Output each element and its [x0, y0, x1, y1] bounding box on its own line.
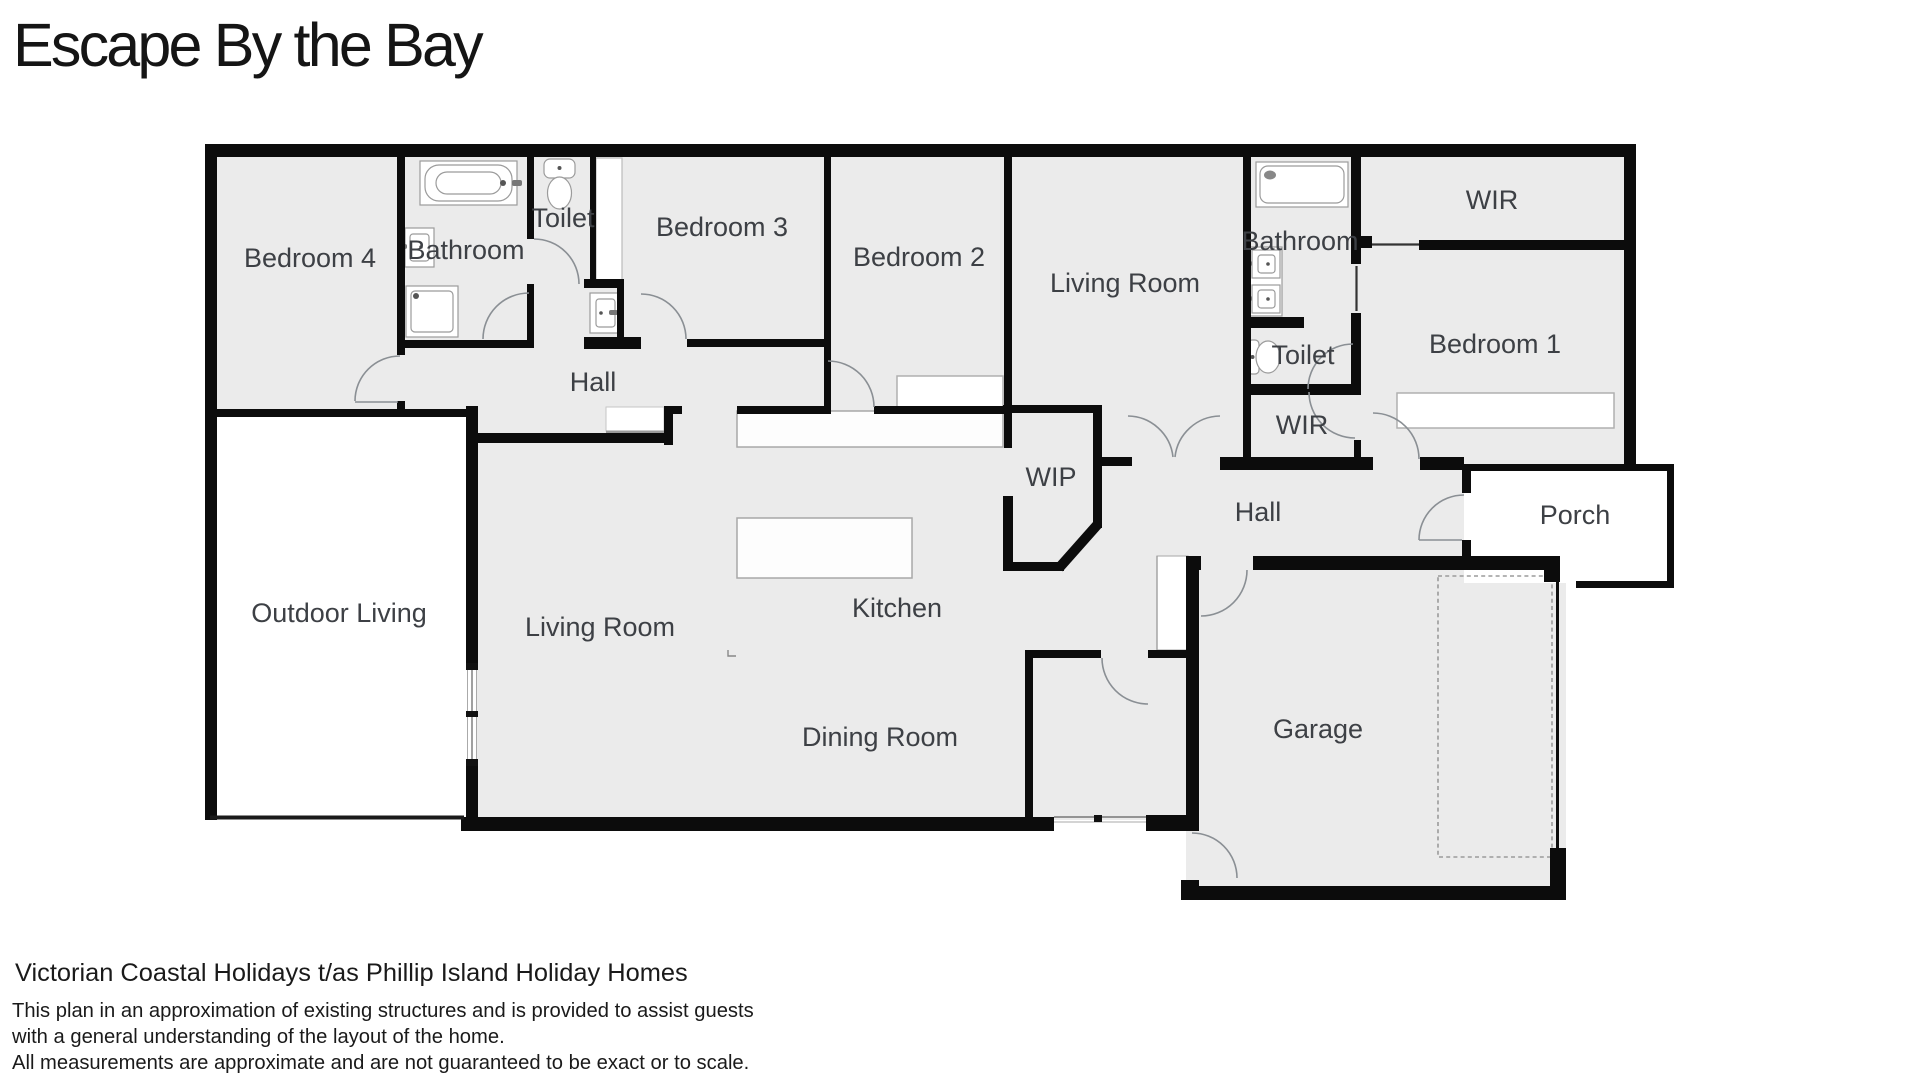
svg-text:Garage: Garage: [1273, 714, 1363, 744]
svg-text:Living Room: Living Room: [1050, 268, 1200, 298]
svg-text:WIP: WIP: [1026, 462, 1077, 492]
svg-text:Bathroom: Bathroom: [1241, 226, 1358, 256]
svg-text:WIR: WIR: [1466, 185, 1518, 215]
svg-text:Bedroom 3: Bedroom 3: [656, 212, 788, 242]
svg-text:Outdoor Living: Outdoor Living: [251, 598, 427, 628]
svg-text:Bedroom 1: Bedroom 1: [1429, 329, 1561, 359]
svg-text:Toilet: Toilet: [1271, 340, 1335, 370]
svg-text:Bathroom: Bathroom: [407, 235, 524, 265]
svg-text:Living Room: Living Room: [525, 612, 675, 642]
svg-text:Toilet: Toilet: [531, 203, 595, 233]
svg-text:Bedroom 2: Bedroom 2: [853, 242, 985, 272]
svg-text:Dining Room: Dining Room: [802, 722, 958, 752]
svg-text:Porch: Porch: [1540, 500, 1611, 530]
svg-text:Hall: Hall: [570, 367, 617, 397]
svg-text:Kitchen: Kitchen: [852, 593, 942, 623]
svg-text:Bedroom 4: Bedroom 4: [244, 243, 376, 273]
svg-text:Hall: Hall: [1235, 497, 1282, 527]
svg-text:WIR: WIR: [1276, 410, 1328, 440]
